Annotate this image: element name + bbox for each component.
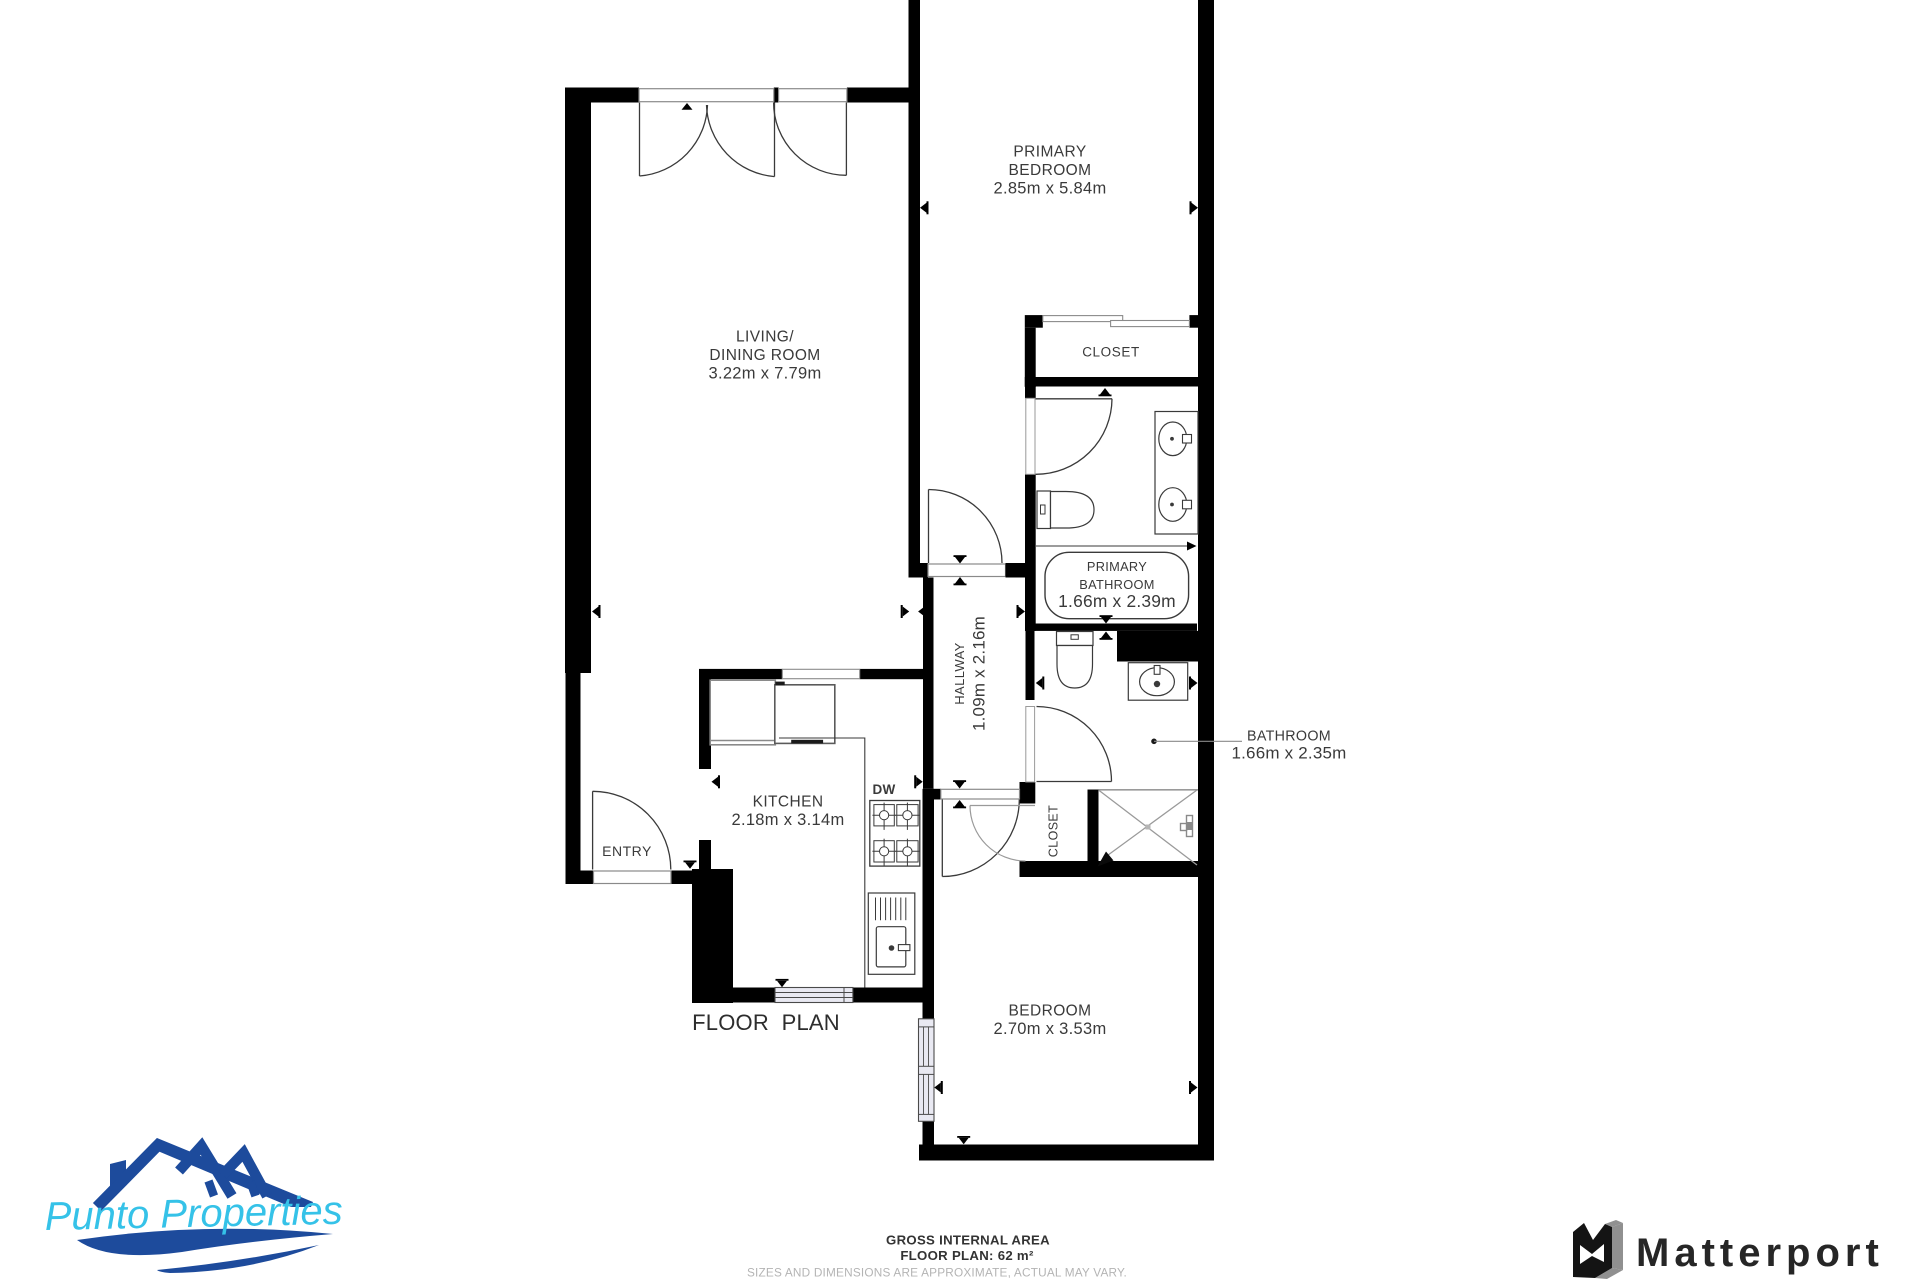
svg-text:HALLWAY: HALLWAY: [952, 642, 967, 705]
svg-text:1.66m x 2.35m: 1.66m x 2.35m: [1231, 744, 1346, 763]
svg-text:DINING ROOM: DINING ROOM: [709, 347, 820, 364]
svg-text:PRIMARY: PRIMARY: [1013, 144, 1086, 161]
svg-text:FLOOR PLAN: 62 m²: FLOOR PLAN: 62 m²: [900, 1248, 1034, 1263]
svg-text:PRIMARY: PRIMARY: [1087, 559, 1147, 574]
svg-text:2.18m x 3.14m: 2.18m x 3.14m: [731, 811, 844, 829]
svg-text:LIVING/: LIVING/: [736, 329, 794, 346]
svg-text:BATHROOM: BATHROOM: [1247, 729, 1331, 745]
svg-text:BEDROOM: BEDROOM: [1009, 1003, 1092, 1020]
svg-text:GROSS INTERNAL AREA: GROSS INTERNAL AREA: [886, 1233, 1050, 1248]
svg-text:BEDROOM: BEDROOM: [1009, 162, 1092, 179]
svg-text:BATHROOM: BATHROOM: [1079, 577, 1154, 592]
svg-text:Matterport: Matterport: [1636, 1231, 1884, 1275]
svg-text:SIZES AND DIMENSIONS ARE APPRO: SIZES AND DIMENSIONS ARE APPROXIMATE, AC…: [747, 1266, 1127, 1280]
svg-text:CLOSET: CLOSET: [1082, 345, 1140, 360]
svg-text:1.66m x 2.39m: 1.66m x 2.39m: [1058, 591, 1176, 611]
svg-text:1.09m x 2.16m: 1.09m x 2.16m: [970, 616, 989, 731]
svg-text:3.22m x 7.79m: 3.22m x 7.79m: [708, 365, 821, 383]
svg-text:ENTRY: ENTRY: [602, 843, 652, 859]
svg-text:DW: DW: [872, 782, 895, 797]
svg-text:FLOOR PLAN: FLOOR PLAN: [692, 1010, 840, 1035]
svg-text:2.85m x 5.84m: 2.85m x 5.84m: [993, 180, 1106, 198]
svg-text:CLOSET: CLOSET: [1047, 805, 1061, 857]
svg-text:2.70m x 3.53m: 2.70m x 3.53m: [993, 1020, 1106, 1038]
svg-text:KITCHEN: KITCHEN: [753, 794, 824, 811]
svg-text:Punto Properties: Punto Properties: [44, 1189, 343, 1239]
